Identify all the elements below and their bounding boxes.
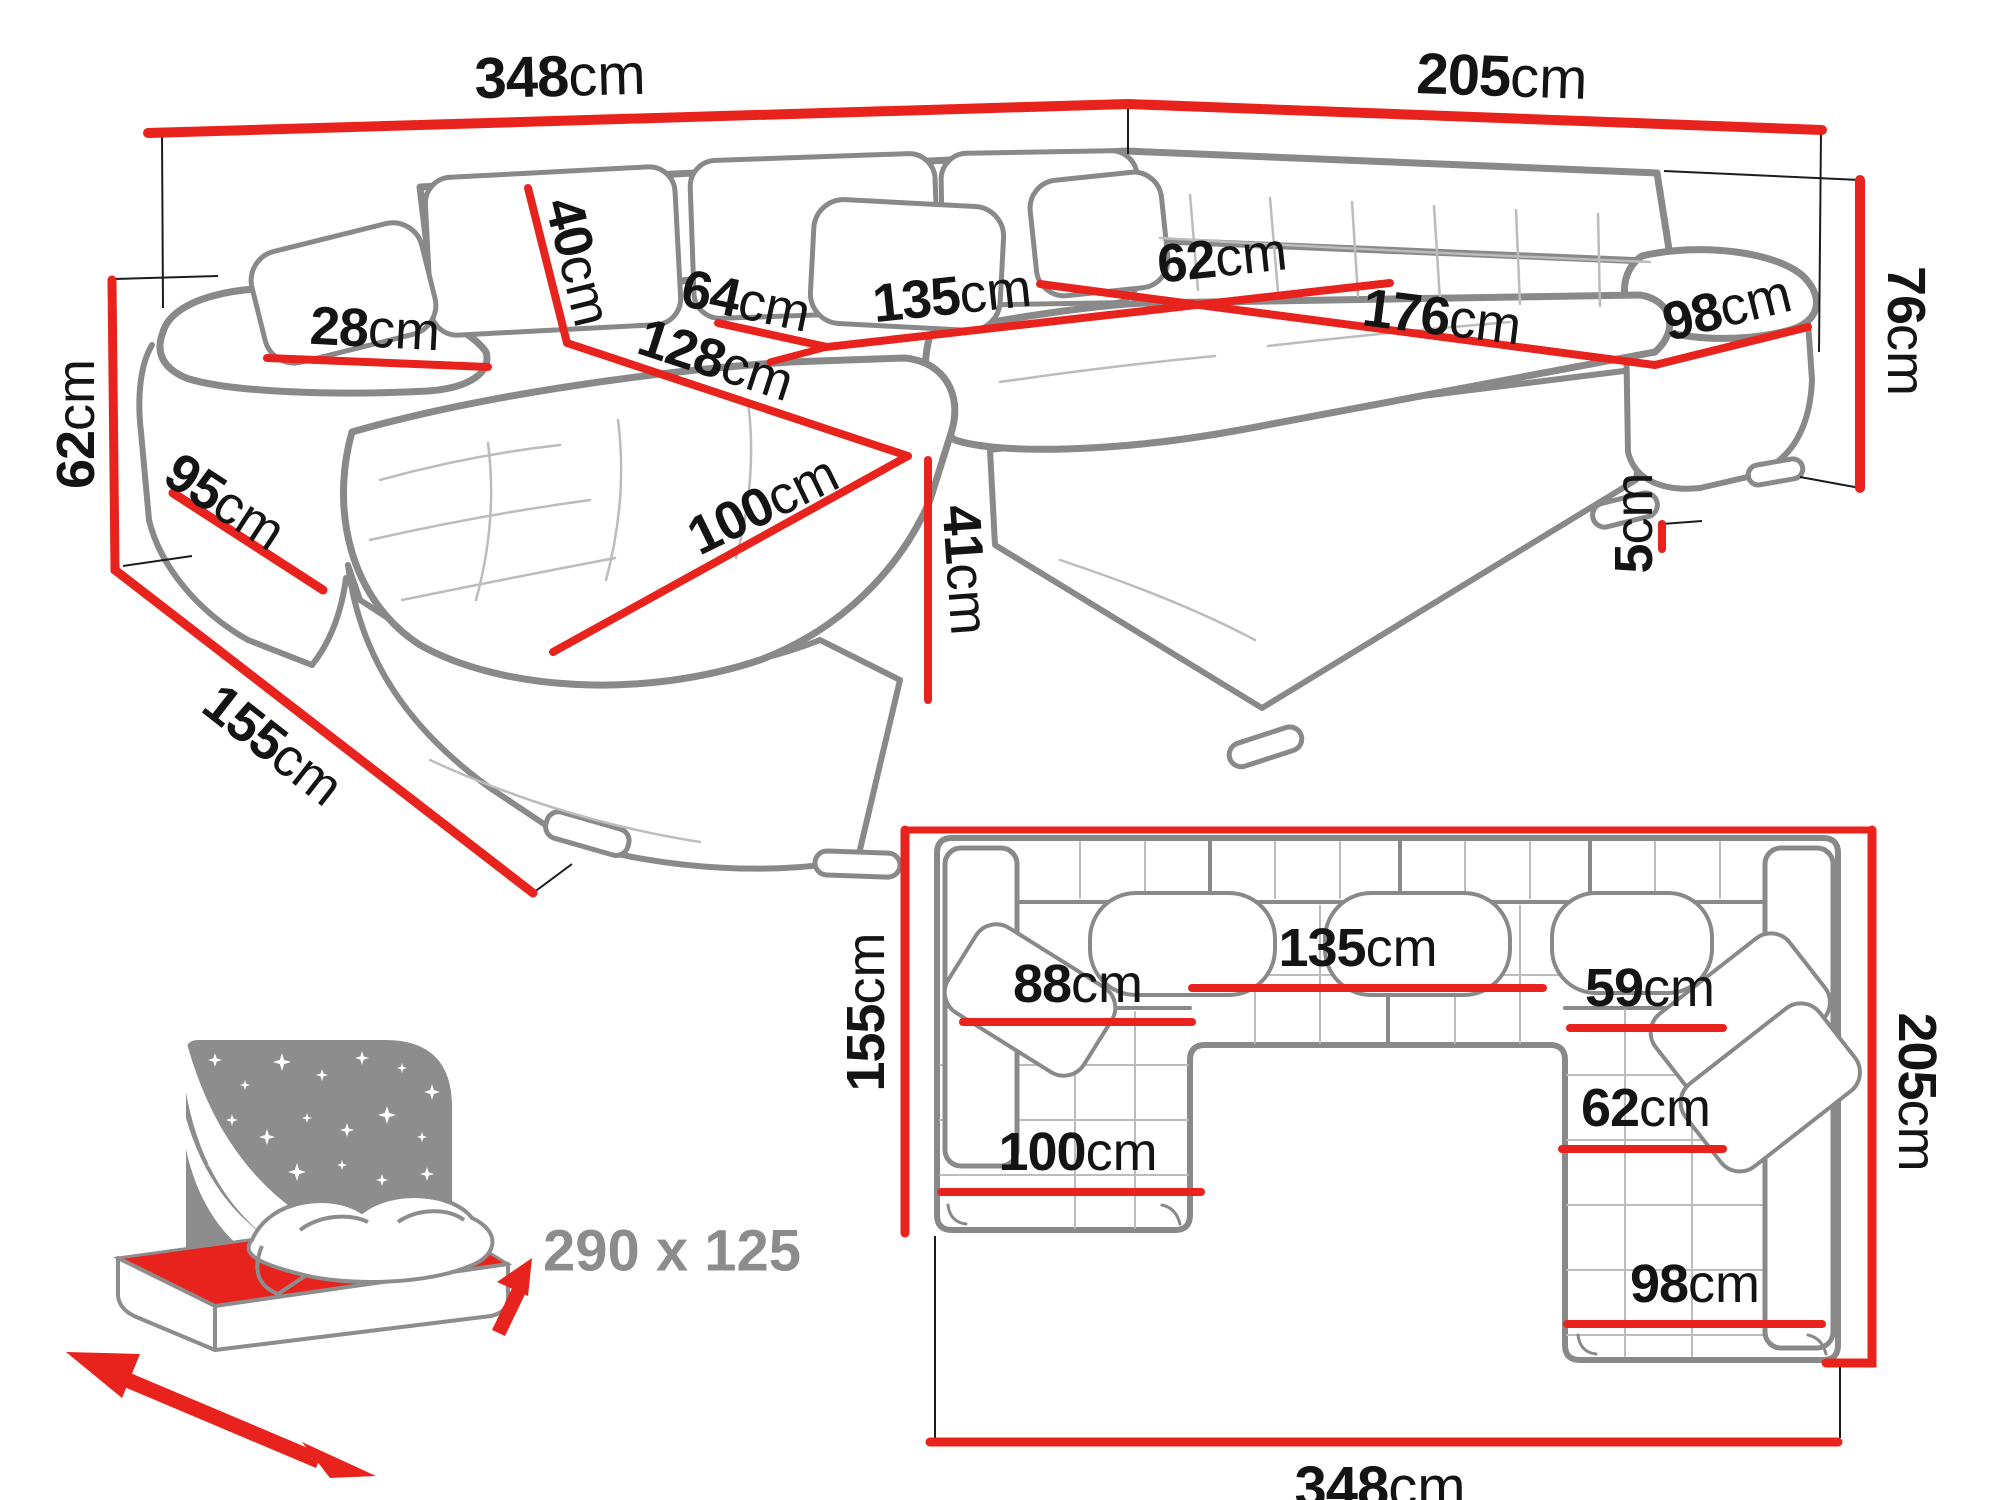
dim-value: 62 — [1154, 229, 1218, 295]
dim-unit: cm — [1366, 918, 1438, 978]
dim-value: 205 — [1887, 1012, 1947, 1099]
sleeping-size-label: 290 x 125 — [543, 1218, 801, 1285]
plan-dim-chaise-width: 100cm — [998, 1125, 1157, 1179]
dim-back-width: 348cm — [474, 46, 647, 108]
dim-leg-height: 5cm — [1607, 472, 1661, 573]
dim-unit: cm — [935, 561, 1000, 637]
dim-value: 205 — [1415, 41, 1511, 109]
dim-value: 155 — [836, 1004, 896, 1091]
dim-armrest-width: 28cm — [309, 299, 442, 360]
dim-unit: cm — [1604, 472, 1664, 544]
dim-value: 348 — [474, 44, 569, 111]
plan-dim-total-width: 348cm — [1294, 1459, 1465, 1500]
dim-unit: cm — [1876, 324, 1936, 396]
dim-value: 41 — [931, 503, 995, 565]
dim-unit: cm — [1509, 44, 1589, 112]
plan-dim-right-end-width: 98cm — [1630, 1257, 1760, 1311]
dim-unit: cm — [1071, 954, 1143, 1014]
dim-unit: cm — [1639, 1078, 1711, 1138]
dim-unit: cm — [1643, 958, 1715, 1018]
plan-dim-middle-seat-width: 135cm — [1278, 921, 1437, 975]
dim-value: 62 — [46, 431, 106, 489]
dim-value: 5 — [1604, 544, 1664, 573]
dim-right-seat-depth: 62cm — [1155, 224, 1290, 291]
dim-unit: cm — [1388, 1455, 1465, 1500]
dim-unit: cm — [567, 42, 646, 109]
dim-unit: cm — [836, 932, 896, 1004]
dim-unit: cm — [956, 258, 1034, 325]
dim-value: 98 — [1630, 1254, 1688, 1314]
dim-unit: cm — [1086, 1122, 1158, 1182]
plan-dim-chaise-depth: 155cm — [839, 932, 893, 1091]
plan-dim-total-depth: 205cm — [1890, 1012, 1944, 1171]
dim-value: 62 — [1581, 1078, 1639, 1138]
dim-seat-height: 41cm — [934, 503, 997, 637]
dim-value: 88 — [1013, 954, 1071, 1014]
dim-unit: cm — [366, 299, 441, 363]
dim-unit: cm — [1446, 288, 1525, 356]
plan-dim-right-seat-inner: 59cm — [1585, 961, 1715, 1015]
dim-value: 135 — [1278, 918, 1365, 978]
dim-armrest-height: 62cm — [49, 359, 103, 489]
plan-dim-right-seat-depth: 62cm — [1581, 1081, 1711, 1135]
dim-right-back-width: 205cm — [1415, 45, 1588, 109]
sleeping-function-icon — [66, 1040, 532, 1478]
sleeping-size-value: 290 x 125 — [543, 1219, 801, 1284]
plan-dim-chaise-seat-width: 88cm — [1013, 957, 1143, 1011]
dim-value: 59 — [1585, 958, 1643, 1018]
dim-unit: cm — [1212, 221, 1290, 288]
dim-value: 76 — [1876, 266, 1936, 324]
furniture-dimension-diagram: 348cm 205cm 76cm 62cm 95cm 155cm 28cm 40… — [0, 0, 2000, 1500]
dim-unit: cm — [46, 359, 106, 431]
dim-value: 135 — [870, 265, 963, 334]
dim-value: 28 — [308, 296, 369, 359]
dim-value: 348 — [1294, 1455, 1388, 1500]
dim-value: 100 — [998, 1122, 1085, 1182]
dim-unit: cm — [1688, 1254, 1760, 1314]
dim-total-height: 76cm — [1879, 266, 1933, 396]
dim-unit: cm — [1887, 1100, 1947, 1172]
dim-value: 176 — [1359, 278, 1453, 348]
